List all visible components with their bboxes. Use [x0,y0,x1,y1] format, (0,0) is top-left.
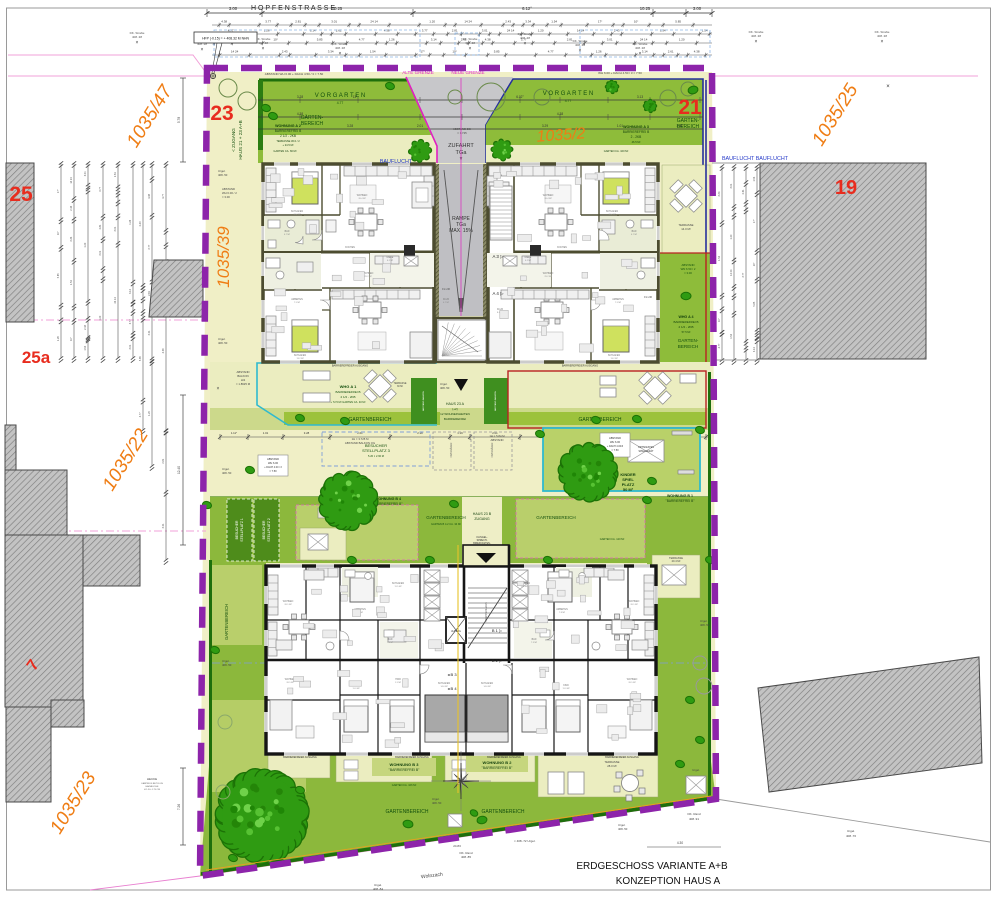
svg-text:5.85: 5.85 [57,273,60,278]
svg-text:26.4 M²: 26.4 M² [358,197,365,200]
svg-text:HFP (-0.15) = + 408.32 M NHN: HFP (-0.15) = + 408.32 M NHN [202,37,249,41]
svg-text:WOHNEN: WOHNEN [543,195,554,197]
svg-text:◂ B 4: ◂ B 4 [447,686,457,691]
svg-text:WOHNUNG A 2: WOHNUNG A 2 [275,124,301,128]
svg-text:GÄRTEN-: GÄRTEN- [301,114,324,121]
svg-text:25a: 25a [22,348,51,367]
svg-text:4.77: 4.77 [548,50,554,54]
svg-text:BARRIEREFREIER AUSGANG: BARRIEREFREIER AUSGANG [332,364,368,368]
svg-text:20.4 M²: 20.4 M² [672,559,681,563]
svg-text:BARRIEREFREI B: BARRIEREFREI B [673,320,698,324]
svg-text:1.20: 1.20 [84,242,87,247]
svg-text:4.77: 4.77 [139,412,142,417]
svg-text:BARRIEREFREIER AUSGANG: BARRIEREFREIER AUSGANG [605,756,639,759]
svg-text:5.85: 5.85 [753,301,756,306]
svg-text:5.85: 5.85 [139,356,142,361]
svg-text:WOHNEN: WOHNEN [543,273,554,275]
svg-text:+ DACH 4.00 / 3: + DACH 4.00 / 3 [264,466,282,469]
svg-text:1.20: 1.20 [679,38,685,42]
svg-text:3.01: 3.01 [148,330,151,335]
svg-text:13.2 M²: 13.2 M² [608,213,615,216]
svg-text:3.14: 3.14 [129,288,132,293]
svg-text:ABSTAND WH 6.00 + DACH 4.50 /: ABSTAND WH 6.00 + DACH 4.50 / 3 = 7.50 [265,72,324,76]
svg-text:17°: 17° [753,219,756,223]
svg-text:3.00: 3.00 [229,6,238,11]
svg-text:24.83: 24.83 [453,844,461,848]
svg-text:3.01: 3.01 [84,171,87,176]
svg-text:ERDGESCHOSS VARIANTE A+B: ERDGESCHOSS VARIANTE A+B [576,861,728,872]
svg-text:408..38: 408..38 [635,46,645,50]
svg-text:50 M²: 50 M² [623,487,634,492]
svg-text:GARTENBEREICH: GARTENBEREICH [426,515,465,520]
svg-text:GARTENBEREICH: GARTENBEREICH [386,809,429,815]
svg-text:5.85: 5.85 [675,20,681,24]
svg-text:= 7.50: = 7.50 [611,448,619,452]
svg-text:3.34: 3.34 [70,236,73,241]
svg-text:BARRIEREFREI B: BARRIEREFREI B [623,130,650,134]
svg-text:408..50: 408..50 [222,663,232,667]
svg-text:BEREICH: BEREICH [301,121,324,127]
svg-text:6.2 M²: 6.2 M² [387,259,393,262]
svg-text:TREPPENHAUS: TREPPENHAUS [484,602,488,622]
svg-text:WOHNUNG B 3: WOHNUNG B 3 [390,762,420,767]
svg-text:×: × [217,386,220,392]
svg-text:1.54: 1.54 [753,176,756,181]
svg-text:2.01: 2.01 [417,124,423,128]
svg-text:7.3 M²: 7.3 M² [387,641,393,644]
svg-text:7.26: 7.26 [177,804,181,810]
svg-text:FAHRRÄDER: FAHRRÄDER [491,442,494,457]
svg-text:2.61: 2.61 [668,50,674,54]
svg-text:ABSTAND: ABSTAND [490,438,503,442]
svg-text:GARTENBEREICH: GARTENBEREICH [482,809,525,815]
svg-text:19: 19 [835,177,857,199]
svg-text:×: × [579,48,582,54]
svg-text:SCHLAFEN: SCHLAFEN [438,682,451,685]
svg-text:ARBEITEN: ARBEITEN [291,298,303,301]
svg-text:3.34: 3.34 [525,20,531,24]
svg-text:1.26: 1.26 [389,38,395,42]
svg-text:SPIELGERÄT: SPIELGERÄT [638,450,654,453]
svg-text:10.25: 10.25 [332,6,343,11]
svg-text:WOHNEN: WOHNEN [629,601,640,603]
svg-text:< ZUGANG: < ZUGANG [231,128,236,152]
svg-text:SCHLAFEN: SCHLAFEN [291,210,304,213]
svg-text:14 24: 14 24 [730,269,733,276]
svg-text:5.85: 5.85 [317,38,323,42]
svg-text:14 24: 14 24 [577,29,585,33]
svg-text:3.01: 3.01 [129,344,132,349]
svg-text:26.4 M²: 26.4 M² [544,197,551,200]
svg-text:"BARRIEREFREI B": "BARRIEREFREI B" [389,768,420,772]
svg-text:1.20: 1.20 [148,410,151,415]
svg-text:A 3 ▷: A 3 ▷ [493,254,505,259]
svg-text:24 14: 24 14 [507,29,515,33]
svg-text:4.38: 4.38 [162,348,165,353]
svg-text:BARRIEREFREI B: BARRIEREFREI B [335,390,360,394]
svg-text:13.2 M²: 13.2 M² [296,357,303,360]
svg-text:408..84: 408..84 [373,887,383,891]
svg-text:2.61: 2.61 [742,189,745,194]
svg-text:12 WOHNEINHEITEN: 12 WOHNEINHEITEN [440,412,470,416]
svg-text:14.0 M²: 14.0 M² [681,227,691,231]
svg-text:B 1 ▷: B 1 ▷ [492,628,503,633]
svg-text:"BARRIEREFREI B": "BARRIEREFREI B" [666,499,695,503]
svg-text:1.54: 1.54 [84,345,87,350]
svg-text:BAD: BAD [388,638,393,641]
svg-text:SCHLAFEN: SCHLAFEN [294,354,307,357]
svg-text:BESUCHER: BESUCHER [262,520,266,539]
svg-text:+ 24.5 M²: + 24.5 M² [282,143,293,147]
svg-text:1.20: 1.20 [99,315,102,320]
svg-text:3.01: 3.01 [99,250,102,255]
svg-text:10°: 10° [70,337,73,341]
svg-text:WH 6.00: WH 6.00 [268,461,279,465]
svg-text:ABSTAND BALKON: ABSTAND BALKON [422,391,425,411]
svg-text:BAD: BAD [532,638,537,641]
svg-text:= 3.725: = 3.725 [457,131,467,135]
svg-text:23: 23 [210,102,233,125]
svg-text:GARTEN CA. 66 M²: GARTEN CA. 66 M² [273,149,296,153]
svg-text:10°: 10° [634,20,639,24]
svg-text:3.00: 3.00 [693,6,702,11]
svg-text:4.38: 4.38 [384,29,390,33]
svg-text:2.61: 2.61 [114,172,117,177]
svg-text:3.77: 3.77 [742,272,745,277]
svg-text:ABSTAND: ABSTAND [267,457,279,461]
svg-text:V O R G A R T E N: V O R G A R T E N [543,91,593,97]
svg-text:WOHNUNG A 3: WOHNUNG A 3 [623,125,649,129]
svg-text:2.43: 2.43 [505,20,511,24]
svg-text:26.1 M²: 26.1 M² [630,603,637,606]
svg-text:3.34: 3.34 [328,50,334,54]
svg-text:KIND: KIND [563,685,569,687]
svg-text:29.2 M²: 29.2 M² [364,275,371,278]
svg-text:× 408..72 Urgel.: × 408..72 Urgel. [514,839,536,843]
svg-text:10°: 10° [273,38,278,42]
svg-text:1.54: 1.54 [730,333,733,338]
svg-text:KOCHEN: KOCHEN [557,247,567,249]
svg-text:13.2 M²: 13.2 M² [293,213,300,216]
svg-text:×: × [755,39,758,45]
svg-text:3.14: 3.14 [431,38,437,42]
svg-text:×: × [136,40,139,46]
svg-text:7.5 M²: 7.5 M² [615,301,621,304]
svg-text:11.3 M²: 11.3 M² [353,687,360,690]
svg-text:KOCHEN: KOCHEN [345,247,355,249]
svg-text:3.28: 3.28 [347,124,353,128]
svg-text:×: × [201,47,204,53]
svg-text:(+2): (+2) [452,407,457,411]
svg-text:2.43: 2.43 [84,324,87,329]
svg-text:4.77: 4.77 [359,38,365,42]
svg-text:1.20: 1.20 [730,234,733,239]
svg-text:408..38: 408..38 [751,34,761,38]
svg-text:3.14: 3.14 [753,347,756,352]
svg-text:BARRIEREFREIER AUSGANG: BARRIEREFREIER AUSGANG [283,756,317,759]
svg-text:2 1/2 - 2KB: 2 1/2 - 2KB [340,395,355,399]
svg-text:46.5 M²: 46.5 M² [632,140,641,144]
svg-text:24 14: 24 14 [114,297,117,304]
svg-text:408..50: 408..50 [218,341,228,345]
svg-text:3.14: 3.14 [310,29,316,33]
svg-text:408..38: 408..38 [877,34,887,38]
svg-text:4.38: 4.38 [148,193,151,198]
svg-text:4.38: 4.38 [694,50,700,54]
svg-text:408..38: 408..38 [258,41,268,45]
svg-text:Urgel.: Urgel. [692,768,700,772]
svg-text:SCHLAFEN: SCHLAFEN [608,354,621,357]
svg-text:1.20: 1.20 [429,20,435,24]
svg-text:3.77: 3.77 [99,186,102,191]
svg-text:STELLPLATZ 3: STELLPLATZ 3 [362,448,390,453]
svg-text:3.28: 3.28 [297,95,303,99]
svg-text:6.7 M²: 6.7 M² [631,233,637,236]
svg-text:17°: 17° [420,50,425,54]
svg-text:GARTEN-: GARTEN- [678,338,699,343]
svg-text:HECKE: HECKE [147,777,157,781]
svg-text:3.13: 3.13 [637,95,643,99]
svg-text:SCHLAFEN: SCHLAFEN [481,682,494,685]
svg-text:BARRIEREFREIER AUSGANG: BARRIEREFREIER AUSGANG [562,364,598,368]
svg-text:1.54: 1.54 [70,280,73,285]
svg-text:ARBEITEN: ARBEITEN [612,298,624,301]
svg-text:408..76: 408..76 [846,834,856,838]
svg-text:4.77: 4.77 [162,193,165,198]
svg-text:408..50: 408..50 [440,386,450,390]
svg-text:408..38: 408..38 [132,35,142,39]
svg-text:6.7 M²: 6.7 M² [284,233,290,236]
svg-text:3.34: 3.34 [718,191,721,196]
svg-text:3.01: 3.01 [607,38,613,42]
svg-text:1.54: 1.54 [702,29,708,33]
svg-text:57.5 M²: 57.5 M² [682,330,691,334]
svg-text:×: × [339,51,342,57]
svg-text:GARTEN CA. 106 M²: GARTEN CA. 106 M² [392,783,417,787]
svg-text:"BARRIEREFREI B": "BARRIEREFREI B" [482,766,513,770]
svg-text:2.43: 2.43 [70,205,73,210]
svg-text:1.20: 1.20 [538,29,544,33]
svg-text:408..38: 408..38 [575,43,585,47]
svg-text:= 7.50: = 7.50 [269,469,277,473]
svg-text:3.01: 3.01 [730,183,733,188]
svg-text:2.81: 2.81 [99,224,102,229]
svg-text:408..85: 408..85 [461,855,471,859]
svg-text:HAINBUCHE: HAINBUCHE [146,785,159,788]
svg-text:4.77: 4.77 [565,99,572,103]
svg-text:×: × [469,46,472,52]
svg-text:2.81: 2.81 [452,29,458,33]
svg-text:CARPINUS BETULUS: CARPINUS BETULUS [141,782,164,785]
svg-text:25: 25 [9,183,33,206]
svg-text:3.77: 3.77 [129,319,132,324]
svg-text:WOHNEN: WOHNEN [357,195,368,197]
svg-text:FLUR: FLUR [443,299,449,301]
svg-text:26.1 M²: 26.1 M² [284,603,291,606]
svg-text:ORTSFESTES: ORTSFESTES [638,446,654,449]
svg-text:BARRIEREFREI B: BARRIEREFREI B [275,129,302,133]
svg-text:H 1.50–1.75 CM: H 1.50–1.75 CM [144,789,160,791]
svg-text:WOHNUNG B 1: WOHNUNG B 1 [667,494,693,498]
svg-text:408..50: 408..50 [218,173,228,177]
svg-text:1.11°: 1.11° [231,431,237,435]
svg-text:1.26: 1.26 [264,29,270,33]
svg-text:BARRIEREFREIER AUSGANG: BARRIEREFREIER AUSGANG [487,756,521,759]
svg-text:2 1/2 - 2KB: 2 1/2 - 2KB [280,134,296,138]
svg-text:GARTENBEREICH: GARTENBEREICH [349,417,392,423]
svg-text:2.81: 2.81 [162,458,165,463]
svg-text:2.43: 2.43 [139,221,142,226]
svg-text:2.61: 2.61 [336,29,342,33]
svg-text:HAUS 23 B: HAUS 23 B [473,512,492,516]
svg-text:7.3 M²: 7.3 M² [531,641,537,644]
svg-text:= 3.00: = 3.00 [684,271,692,275]
svg-text:5.78: 5.78 [177,117,181,123]
svg-text:DK. Rand: DK. Rand [687,812,700,816]
svg-text:28.0 M²: 28.0 M² [607,764,617,768]
svg-text:TERRASSE 30.0 / 2: TERRASSE 30.0 / 2 [276,139,300,143]
svg-text:21: 21 [678,96,702,119]
svg-text:FLUR: FLUR [442,287,451,291]
svg-text:×: × [881,39,884,45]
svg-text:Urgel.: Urgel. [847,829,855,833]
svg-text:A 4 ▷: A 4 ▷ [493,291,505,296]
svg-text:WOHNEN: WOHNEN [283,601,294,603]
svg-text:29.2 M²: 29.2 M² [544,275,551,278]
svg-text:408..38: 408..38 [335,46,345,50]
svg-text:BESUCHER: BESUCHER [235,520,239,539]
svg-text:= 1.8625 M: = 1.8625 M [236,382,251,386]
svg-text:4.77: 4.77 [718,343,721,348]
svg-text:WOHNUNG B 4: WOHNUNG B 4 [375,497,401,501]
svg-text:10.25: 10.25 [640,6,651,11]
svg-text:HAUS 23 A: HAUS 23 A [446,402,465,406]
svg-text:×: × [886,84,890,90]
svg-text:DIELE: DIELE [387,257,394,259]
svg-text:3.77: 3.77 [148,244,151,249]
svg-text:4.38: 4.38 [557,112,563,116]
svg-text:ABSTAND BALKON OG: ABSTAND BALKON OG [345,441,375,445]
svg-text:13.2 M²: 13.2 M² [610,357,617,360]
svg-text:1035/39: 1035/39 [214,226,233,288]
svg-text:WHG A 1: WHG A 1 [340,384,358,389]
svg-text:14 24: 14 24 [70,177,73,184]
svg-text:10°: 10° [718,318,721,322]
svg-text:FLUR: FLUR [644,295,653,299]
svg-text:×: × [524,41,527,47]
svg-text:DIELE: DIELE [525,257,532,259]
svg-text:24 14: 24 14 [640,38,648,42]
svg-text:SCHLAFEN: SCHLAFEN [392,582,405,585]
svg-text:ZUGANG: ZUGANG [474,517,490,521]
svg-text:×: × [262,46,265,52]
svg-text:GARTEN CA. 100 M²: GARTEN CA. 100 M² [604,149,629,153]
svg-text:3.77: 3.77 [265,20,271,24]
svg-text:STELLPLATZ 1: STELLPLATZ 1 [240,518,244,542]
svg-text:2.81: 2.81 [295,20,301,24]
svg-text:7.8 M²: 7.8 M² [559,611,565,614]
svg-text:HWR: HWR [395,679,401,681]
svg-text:SCHLAFEN: SCHLAFEN [606,210,619,213]
svg-text:408..50: 408..50 [700,623,710,627]
svg-text:6.02°: 6.02° [516,95,524,99]
svg-text:2.43: 2.43 [614,29,620,33]
svg-text:WH 6.00 + DACH 4.50 / 3 = 7.50: WH 6.00 + DACH 4.50 / 3 = 7.50 [598,71,642,75]
svg-text:4.38: 4.38 [485,38,491,42]
svg-text:BAD: BAD [632,230,637,233]
svg-text:4.38: 4.38 [221,20,227,24]
svg-text:10°: 10° [753,262,756,266]
svg-text:1.54: 1.54 [718,255,721,260]
svg-text:H O P F E N S T R A S S E: H O P F E N S T R A S S E [251,5,335,12]
svg-text:HAUS 21 + 23 A+B: HAUS 21 + 23 A+B [238,120,243,159]
svg-text:FAHRRÄDER: FAHRRÄDER [450,442,453,457]
svg-text:5.20 × 2.60 M: 5.20 × 2.60 M [368,454,384,458]
svg-text:26.5 M²: 26.5 M² [286,681,293,684]
svg-text:AUFZUG: AUFZUG [451,630,461,633]
svg-text:BARRIEREFREIER AUSGANG: BARRIEREFREIER AUSGANG [395,756,429,759]
svg-text:17°: 17° [598,20,603,24]
svg-text:1.5 M²: 1.5 M² [395,681,401,684]
svg-text:17°: 17° [57,189,60,193]
svg-text:2.43: 2.43 [282,50,288,54]
svg-text:408..91: 408..91 [689,817,699,821]
svg-text:3.34: 3.34 [660,29,666,33]
svg-text:2 1/2 - 2KB: 2 1/2 - 2KB [678,325,693,329]
svg-text:7.5 M²: 7.5 M² [294,301,300,304]
svg-text:WHG A 4: WHG A 4 [678,315,693,319]
svg-text:ABSTAND: ABSTAND [609,436,621,440]
svg-text:30 M²: 30 M² [397,385,403,388]
svg-text:26.5 M²: 26.5 M² [628,681,635,684]
svg-text:4.77: 4.77 [337,101,344,105]
svg-text:V O R G A R T E N: V O R G A R T E N [315,93,365,99]
svg-text:KONZEPTION HAUS A: KONZEPTION HAUS A [616,876,721,887]
svg-text:ARBEITEN: ARBEITEN [556,608,568,611]
svg-text:408..50: 408..50 [618,827,628,831]
svg-text:◂ B 3: ◂ B 3 [447,672,457,677]
svg-text:408..38: 408..38 [520,36,530,40]
svg-text:GARTENBEREICH: GARTENBEREICH [536,515,575,520]
svg-text:3.28: 3.28 [304,431,310,435]
svg-text:B 2 ▷: B 2 ▷ [492,658,503,663]
svg-text:3.01: 3.01 [482,29,488,33]
svg-text:3.01: 3.01 [114,226,117,231]
svg-text:BAUFLUCHT: BAUFLUCHT [380,159,413,165]
svg-text:GARTENBEREICH: GARTENBEREICH [224,604,229,640]
svg-text:+ DACH 4.00/3: + DACH 4.00/3 [607,445,624,448]
svg-text:24 14: 24 14 [370,20,378,24]
svg-text:6.2 M²: 6.2 M² [525,259,531,262]
svg-text:1.54: 1.54 [551,20,557,24]
svg-text:2 - 2KB: 2 - 2KB [631,135,642,139]
svg-text:14 24: 14 24 [464,20,472,24]
svg-text:11.3 M²: 11.3 M² [563,687,570,690]
svg-text:1.26: 1.26 [129,219,132,224]
svg-text:BAUFLUCHT BAUFLUCHT: BAUFLUCHT BAUFLUCHT [722,156,789,162]
svg-text:408..38: 408..38 [465,41,475,45]
svg-text:BARRIEREFREI: BARRIEREFREI [444,417,466,421]
svg-text:BEREICH: BEREICH [677,124,700,130]
svg-text:14 24: 14 24 [231,50,239,54]
svg-text:12.40: 12.40 [177,466,181,474]
svg-text:WH 6.00: WH 6.00 [610,440,621,444]
svg-text:10°: 10° [57,231,60,235]
svg-text:1.01: 1.01 [263,431,269,435]
svg-text:3.01: 3.01 [331,20,337,24]
svg-text:BAD: BAD [285,230,290,233]
svg-text:ABSTAND BALKON: ABSTAND BALKON [494,391,497,411]
